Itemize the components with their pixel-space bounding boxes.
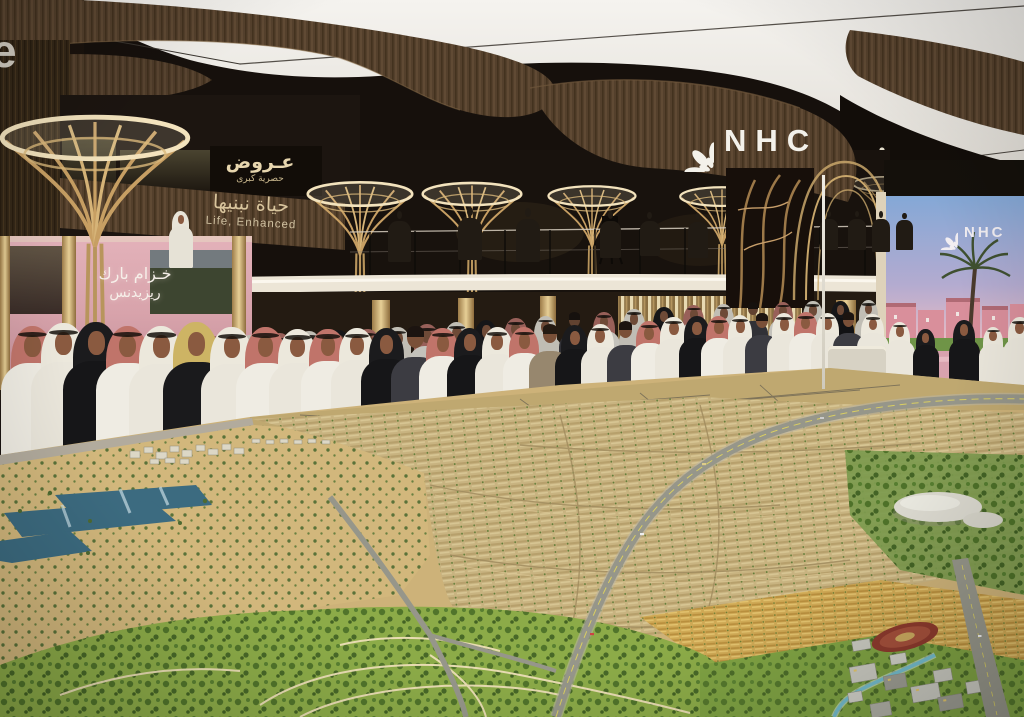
person-silhouette	[458, 206, 482, 260]
person-silhouette	[516, 207, 540, 262]
person-silhouette	[896, 212, 913, 250]
person-thobeWhiteS	[168, 208, 194, 268]
person-silhouette	[388, 210, 411, 262]
person-silhouette	[872, 210, 890, 252]
person-silhouette	[640, 211, 660, 256]
person-silhouette	[600, 210, 621, 258]
person-silhouette	[848, 210, 866, 250]
exhibition-photo: e عـروض حصرية كبرى حياة نبنيها Life, Enh…	[0, 0, 1024, 717]
structural-pole	[822, 175, 825, 389]
person-silhouette	[688, 212, 708, 258]
scale-model-city	[0, 355, 1024, 717]
